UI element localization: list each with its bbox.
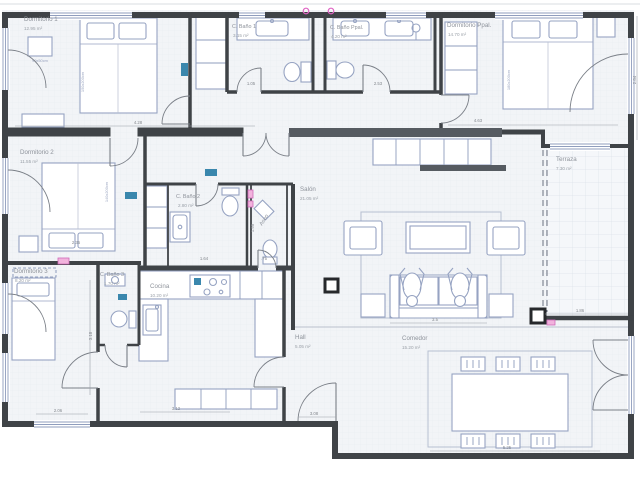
bed1-size-label: 150x200cm <box>80 72 85 92</box>
armchair-left <box>344 221 382 255</box>
room-label-dormitorio-1: Dormitorio 1 <box>24 16 58 23</box>
room-label-dormitorio-ppal: Dormitorio Ppal. <box>447 22 492 29</box>
toilet-tank <box>327 61 336 79</box>
room-label-bathroom-3: C. Baño 3 <box>100 272 124 278</box>
radiator-marker-corridor <box>181 63 188 76</box>
toilet-tank <box>301 62 311 82</box>
dim-label: 2.35 <box>72 240 81 245</box>
dim-label: 2.06 <box>54 408 63 413</box>
dim-label: 2.84 <box>632 75 637 84</box>
room-area-dormitorio-3: 8.20 m² <box>15 278 31 283</box>
dining-table <box>452 374 568 431</box>
structural-column-terrace <box>531 309 545 323</box>
nightstand-ppal <box>597 17 615 37</box>
room-label-bathroom-1: C. Baño 1 <box>232 24 256 30</box>
structural-column <box>325 279 338 292</box>
window-terraza-top <box>550 142 610 151</box>
bed-dormitorio-ppal <box>503 16 593 109</box>
toilet-bowl <box>336 62 354 78</box>
pink-marker-terrace <box>547 320 555 325</box>
pink-marker-aseo <box>248 190 253 198</box>
room-area-dormitorio-1: 12.95 m² <box>24 26 43 31</box>
corridor-closet <box>373 139 491 165</box>
terrace-floor <box>545 148 629 318</box>
armchair-right <box>487 221 525 255</box>
floor-plan-page: 150x200cm 90x50cm <box>0 0 640 480</box>
side-table-right <box>489 294 513 317</box>
dim-label: 2.53 <box>374 81 383 86</box>
room-area-dormitorio-ppal: 14.70 m² <box>448 32 467 37</box>
room-area-cocina: 10.20 m² <box>150 293 169 298</box>
room-area-comedor: 15.20 m² <box>402 345 421 350</box>
window-dormitorio-ppal-top <box>495 11 583 20</box>
dim-label: 3.5 <box>432 317 439 322</box>
salon-storage-band <box>420 165 506 171</box>
dim-label: 4.63 <box>474 118 483 123</box>
room-label-bathroom-ppal: C. Baño Ppal. <box>330 25 363 31</box>
window-dormitorio-3-left <box>1 283 10 334</box>
dresser-dormitorio-1 <box>22 114 64 127</box>
pink-marker-dorm3 <box>58 258 69 264</box>
room-label-dormitorio-2: Dormitorio 2 <box>20 149 54 156</box>
dim-label: 3.08 <box>310 411 319 416</box>
side-table-left <box>361 294 385 317</box>
desk-dormitorio-1 <box>28 37 52 56</box>
dim-label: 1.64 <box>200 256 209 261</box>
dim-label: 1.95 <box>250 223 255 232</box>
stove-control-icon <box>194 278 201 285</box>
radiator-marker-bath2 <box>205 169 217 176</box>
bed-ppal-size-label: 180x200cm <box>506 70 511 90</box>
dim-label: .75 <box>261 256 268 261</box>
room-area-dormitorio-2: 11.55 m² <box>20 159 38 164</box>
room-area-bathroom-ppal: 4.20 m² <box>331 34 347 39</box>
room-area-bathroom-3: 1.70 m² <box>104 281 120 286</box>
room-area-hall: 5.05 m² <box>295 344 311 349</box>
radiator-marker-bath3 <box>118 294 127 300</box>
window-dormitorio-1-left <box>1 28 10 90</box>
window-comedor-right <box>627 336 636 414</box>
kitchen-base-cabinets <box>175 389 277 409</box>
salon-top-wall-band <box>289 128 502 137</box>
toilet-bowl <box>222 196 238 216</box>
room-area-bathroom-2: 2.80 m² <box>178 203 194 208</box>
closet-dormitorio-2 <box>146 186 167 248</box>
toilet-tank <box>222 188 239 195</box>
room-label-hall: Hall <box>295 334 306 341</box>
toilet-bowl <box>111 311 127 327</box>
toilet-bowl <box>284 63 300 82</box>
dim-label: 4.28 <box>134 120 143 125</box>
room-area-terraza: 7.30 m² <box>556 166 572 171</box>
dim-label: 1.05 <box>247 81 256 86</box>
closet-hall-top <box>196 17 226 89</box>
pink-marker-aseo-2 <box>248 201 253 207</box>
dim-label: 3.12 <box>172 406 181 411</box>
dining-chairs-top <box>461 357 555 371</box>
window-dormitorio-3-left-2 <box>1 353 10 402</box>
bed-dormitorio-2 <box>42 163 115 251</box>
room-label-cocina: Cocina <box>150 283 170 290</box>
floor-plan-canvas: 150x200cm 90x50cm <box>0 0 640 480</box>
room-area-bathroom-1: 3.15 m² <box>233 33 249 38</box>
window-bathroom-ppal-top <box>386 11 426 20</box>
bed-dormitorio-1 <box>80 18 157 113</box>
dresser-dormitorio-2 <box>19 236 38 252</box>
room-label-terraza: Terraza <box>556 156 577 163</box>
window-dormitorio-2-left <box>1 158 10 214</box>
room-area-salon: 21.05 m² <box>300 196 319 201</box>
room-label-dormitorio-3: Dormitorio 3 <box>14 268 48 275</box>
dim-label: 5.25 <box>503 445 512 450</box>
window-bathroom1-top <box>239 11 265 20</box>
dim-label: 1.86 <box>576 308 585 313</box>
room-label-comedor: Comedor <box>402 335 427 342</box>
radiator-marker-dorm2 <box>125 192 137 199</box>
dim-label: 3.18 <box>88 331 93 340</box>
toilet-tank <box>129 311 136 328</box>
bed2-size-label: 140x200cm <box>104 182 109 202</box>
coffee-table <box>406 222 470 253</box>
room-label-salon: Salón <box>300 186 316 193</box>
window-dormitorio-1-top <box>50 11 132 20</box>
window-bottom-left <box>34 420 90 429</box>
room-label-bathroom-2: C. Baño 2 <box>176 194 200 200</box>
